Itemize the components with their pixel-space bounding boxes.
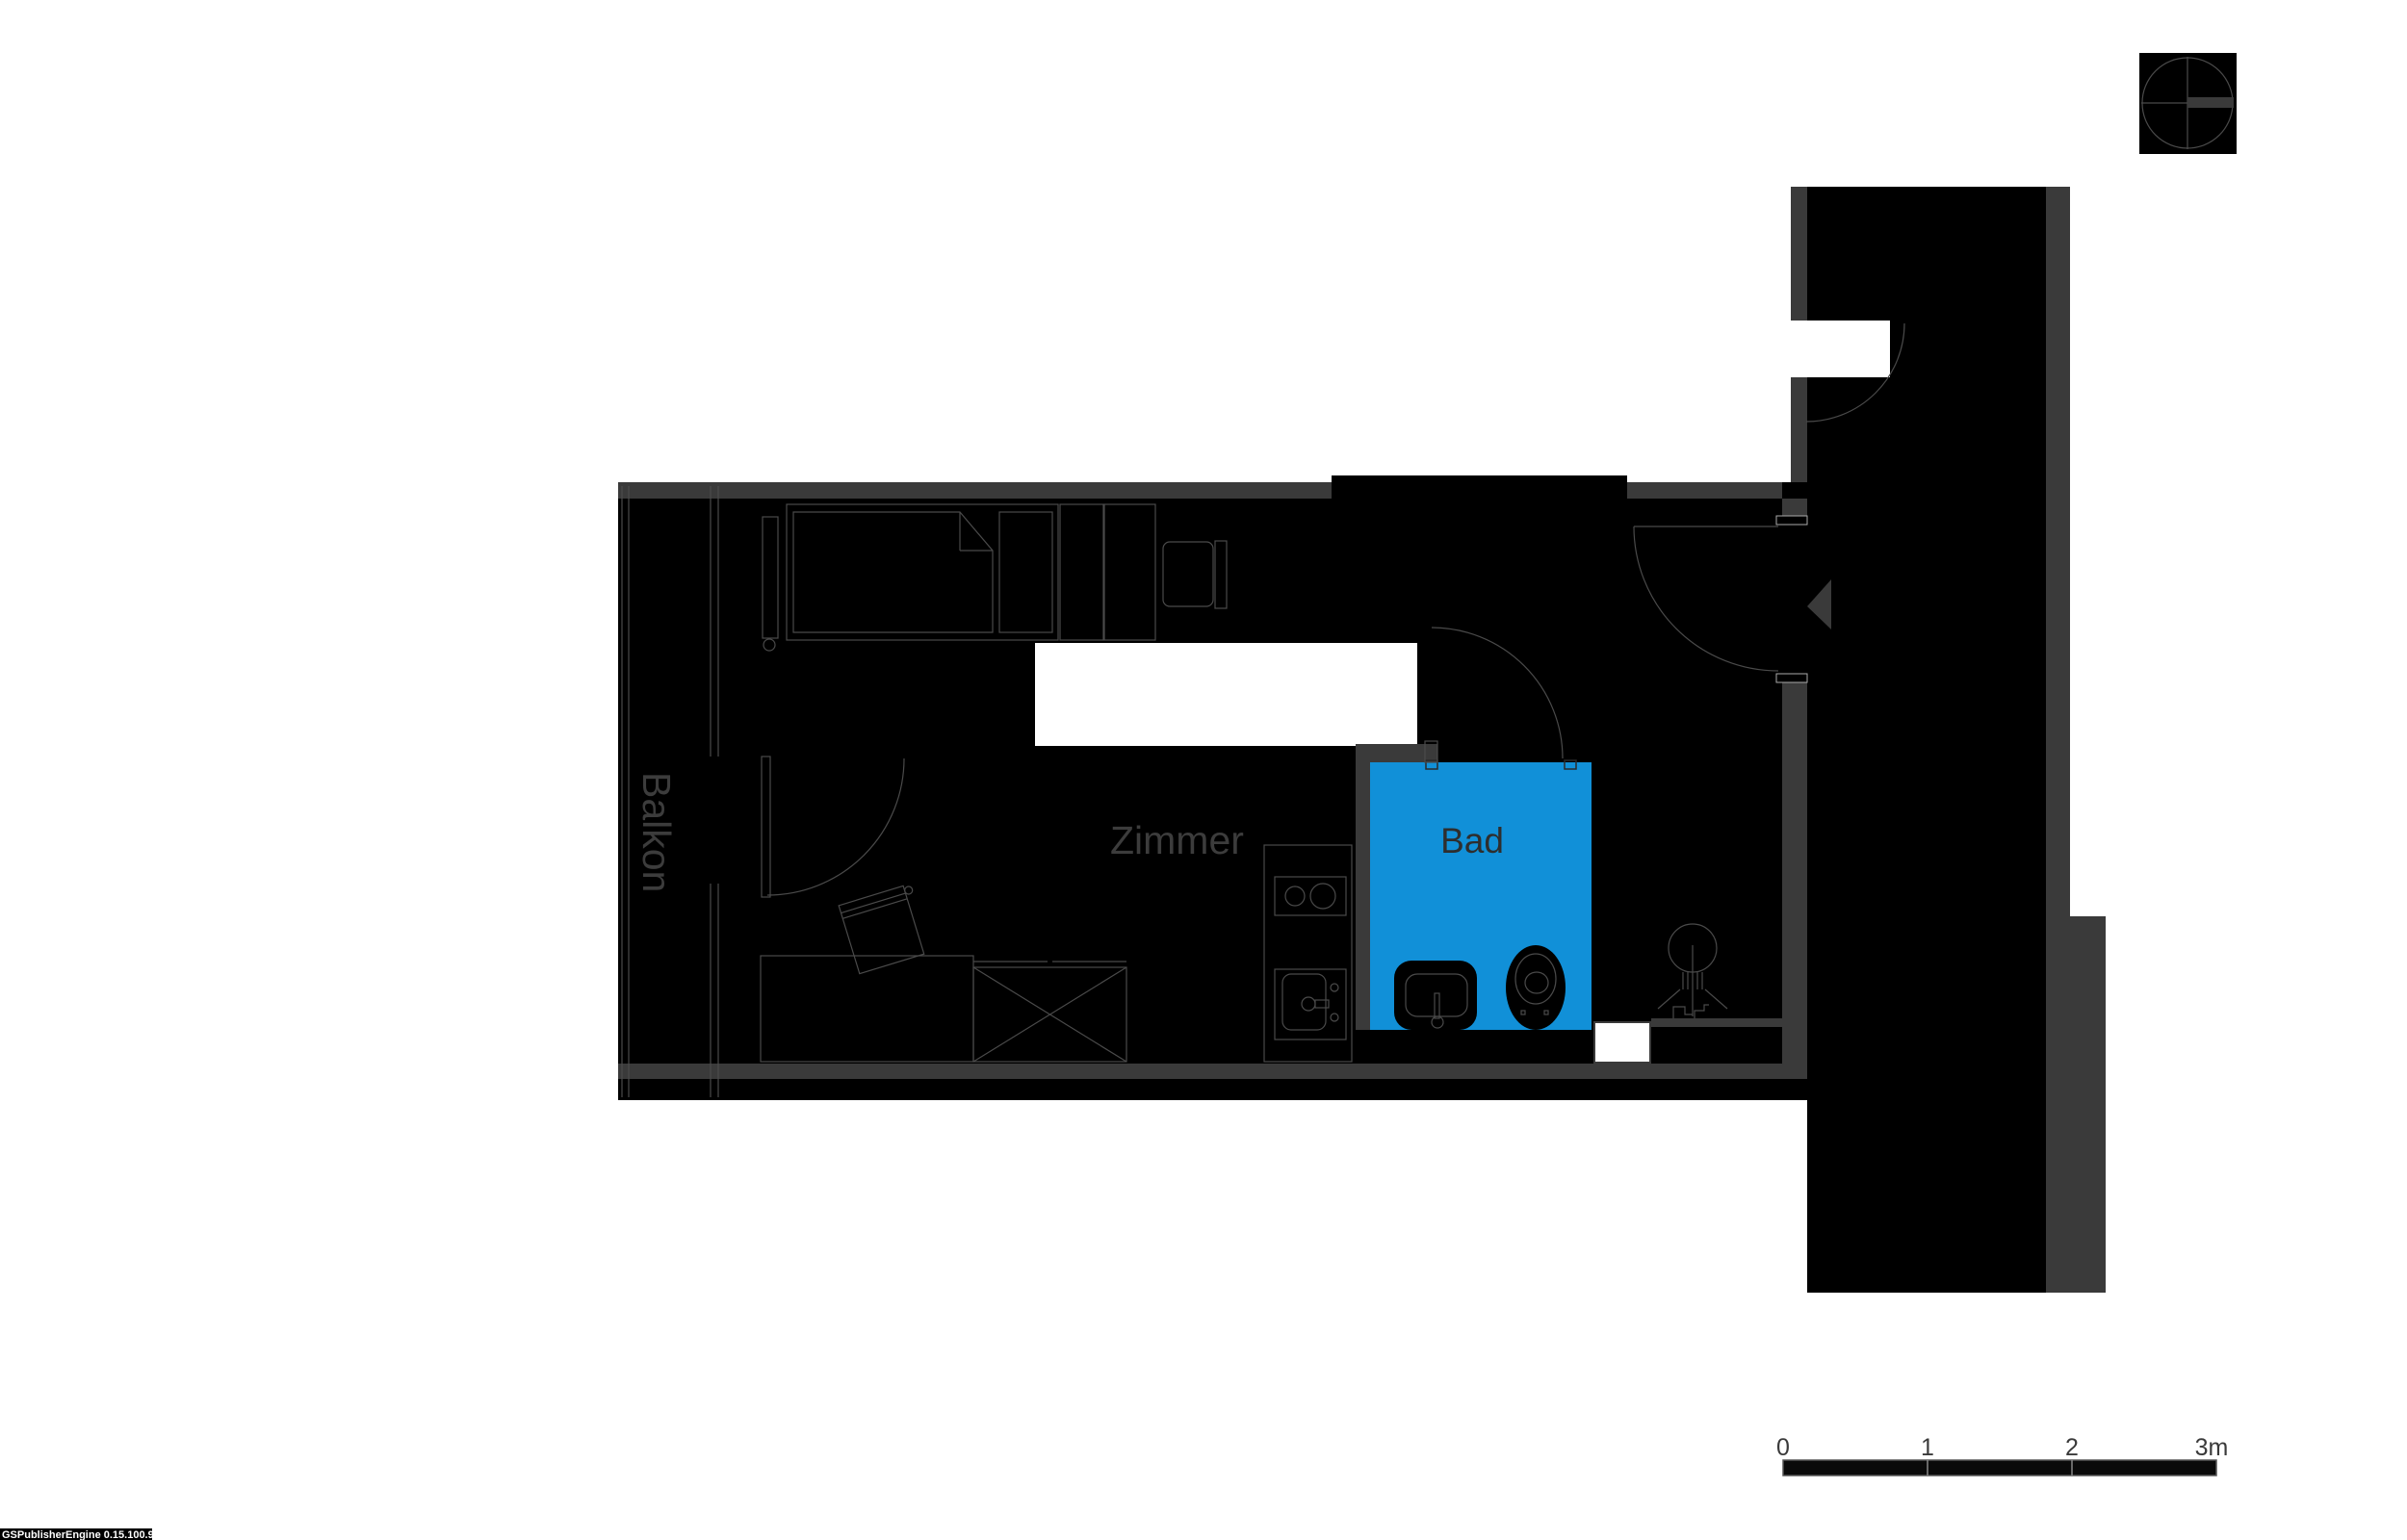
corridor-block xyxy=(1791,187,2106,1293)
scale-tick-label: 0 xyxy=(1776,1434,1790,1461)
floor-plan-drawing: Zimmer Bad Balkon 0 1 2 3m GSPublisherEn… xyxy=(0,0,2407,1540)
bath-label: Bad xyxy=(1440,821,1504,860)
void-area xyxy=(1035,643,1417,746)
balcony-label: Balkon xyxy=(634,772,679,892)
footer-bar: GSPublisherEngine 0.15.100.99 xyxy=(0,1528,160,1540)
scale-tick-label: 2 xyxy=(2065,1434,2079,1461)
shaft xyxy=(1594,1022,1650,1063)
scale-bar: 0 1 2 3m xyxy=(1776,1434,2228,1476)
stair-opening xyxy=(1791,321,1890,377)
toilet-icon xyxy=(1506,945,1566,1030)
engine-version-text: GSPublisherEngine 0.15.100.99 xyxy=(2,1529,160,1540)
floor-plan-canvas: Zimmer Bad Balkon 0 1 2 3m GSPublisherEn… xyxy=(0,0,2407,1540)
scale-tick-label: 3m xyxy=(2195,1434,2229,1461)
washbasin-icon xyxy=(1394,961,1477,1030)
scale-tick-label: 1 xyxy=(1921,1434,1934,1461)
compass-crosshair-icon xyxy=(2139,53,2237,154)
bottom-wall xyxy=(618,1064,1807,1079)
room-label: Zimmer xyxy=(1110,818,1244,862)
